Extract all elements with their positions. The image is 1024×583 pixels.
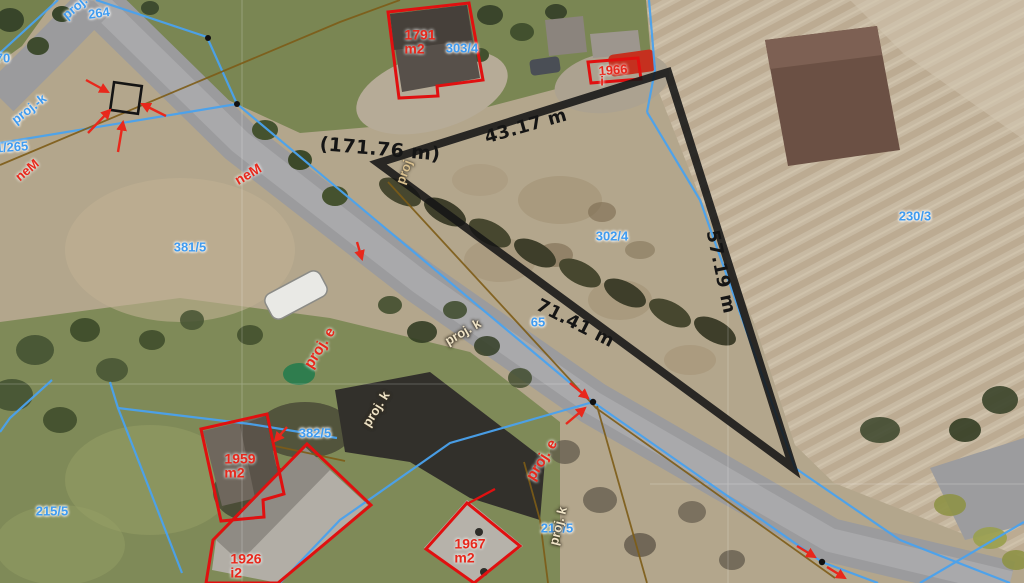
marker-arrows-1 [86, 80, 166, 152]
map-canvas[interactable]: (171.76 m) 43.17 m 57.19 m 71.41 m 264 7… [0, 0, 1024, 583]
chimney [475, 528, 483, 536]
selected-point-square [110, 82, 142, 114]
shed-roof [545, 16, 587, 56]
map-graphics-layer [0, 0, 1024, 583]
green-tarp [283, 363, 315, 385]
bare-parcel-patch [65, 178, 295, 322]
